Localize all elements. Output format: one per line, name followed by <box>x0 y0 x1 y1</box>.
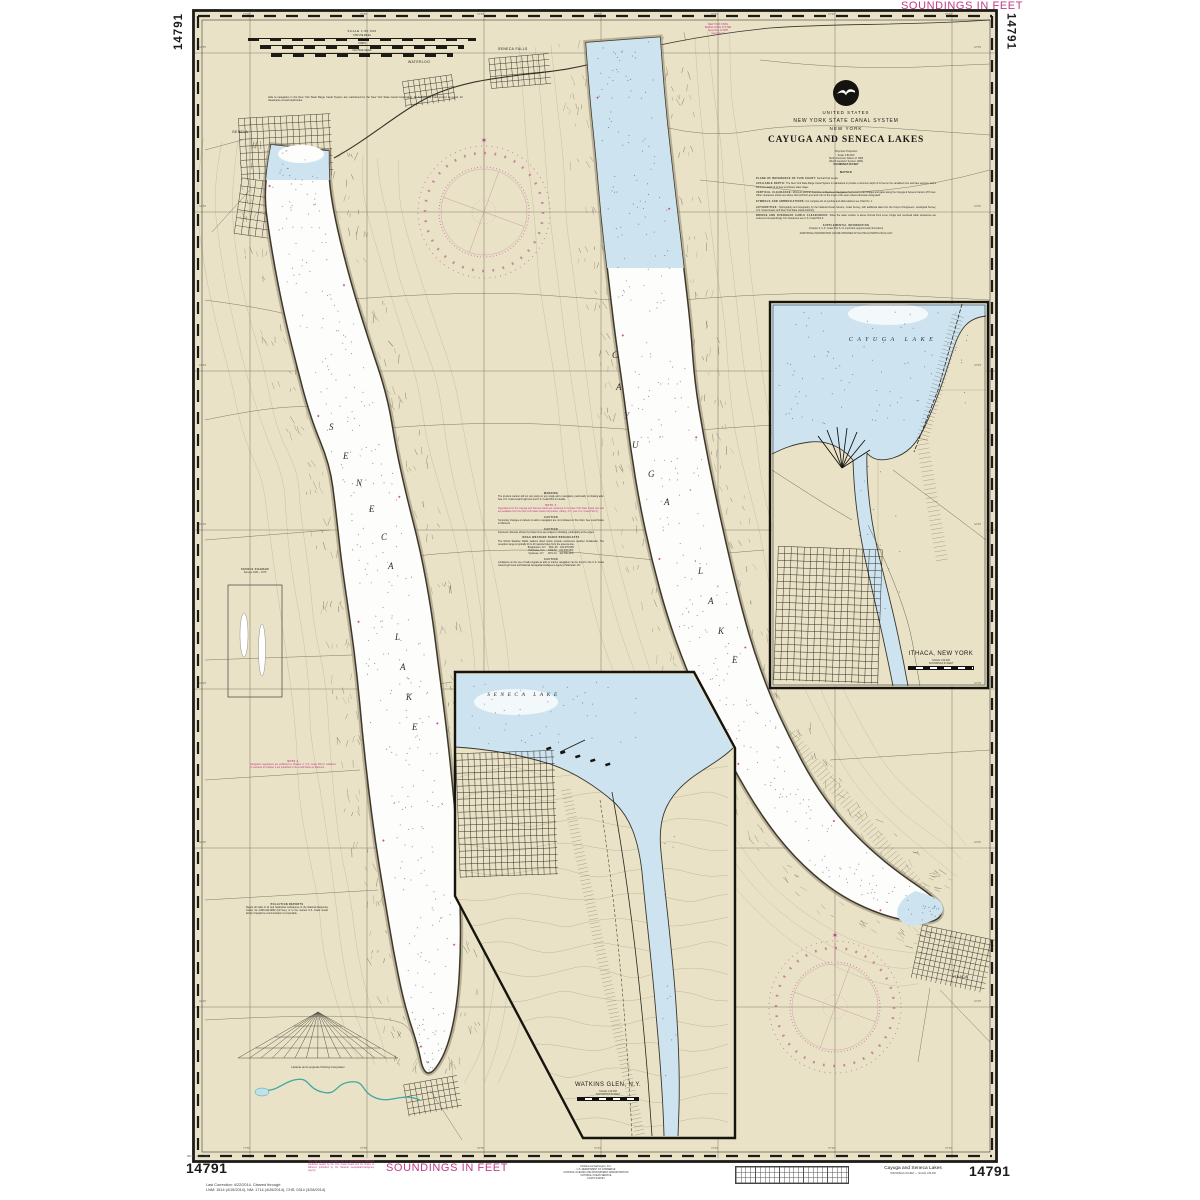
canal-aids-note: Aids to navigation in the New York State… <box>268 96 463 103</box>
canal-note-line: (see Note C) <box>693 33 743 36</box>
notes-block: WARNING The prudent mariner will not rel… <box>498 492 604 501</box>
bottom-right-subtitle: SOUNDINGS IN FEET — SCALE 1:80,000 <box>858 1172 968 1175</box>
note-paragraph: AUTHORITIES: Hydrography and topography … <box>756 206 936 212</box>
scale-bar <box>271 53 453 57</box>
title-block: UNITED STATES NEW YORK STATE CANAL SYSTE… <box>756 110 936 235</box>
graticule-label: 42°30' <box>199 841 206 844</box>
lake-letter: A <box>708 596 714 606</box>
town-label-waterloo: WATERLOO <box>408 60 430 64</box>
inset-ithaca-title-block: ITHACA, NEW YORK SCALE 1:20,000 SOUNDING… <box>896 651 986 670</box>
scale-text: SCALE 1:80,000 <box>246 30 478 34</box>
interpolator-label: Latitude and Longitude Plotting Interpol… <box>248 1066 388 1069</box>
lake-letter: K <box>406 692 412 702</box>
graticule-label: 76°50' <box>477 13 484 16</box>
lake-letter: U <box>632 440 639 450</box>
lake-letter: C <box>612 350 618 360</box>
note-a-body: Navigation regulations are published in … <box>250 763 336 769</box>
title-system: NEW YORK STATE CANAL SYSTEM <box>756 118 936 124</box>
lake-letter: Y <box>624 411 629 421</box>
note-paragraph: SYMBOLS AND ABBREVIATIONS: For complete … <box>756 200 936 203</box>
margin-number-bottom-left: 14791 <box>186 1160 227 1178</box>
publisher-line: COAST SURVEY <box>550 1178 642 1181</box>
inset-watkins-lake-label: SENECA LAKE <box>466 692 582 699</box>
graticule-label: 76°30' <box>945 13 952 16</box>
lake-letter: A <box>616 382 622 392</box>
scale-bars-block: SCALE 1:80,000 STATUTE MILES YARDS NAUTI… <box>246 30 478 57</box>
graticule-label: 42°50' <box>199 205 206 208</box>
lake-letter: E <box>343 451 349 461</box>
north-star-icon: ✶ <box>832 931 839 940</box>
bottom-right-title-block: Cayuga and Seneca Lakes SOUNDINGS IN FEE… <box>858 1166 968 1175</box>
scale-bar <box>248 38 476 42</box>
graticule-label: 76°40' <box>711 1147 718 1150</box>
graticule-label: 76°35' <box>828 13 835 16</box>
notes-block: CAUTION Limitations on the use of radio … <box>498 558 604 567</box>
notes-block: NOAA WEATHER RADIO BROADCASTS The NOAA W… <box>498 536 604 555</box>
note-paragraph: VERTICAL CLEARANCE: Minimum vertical cle… <box>756 191 936 197</box>
lake-letter: G <box>648 469 655 479</box>
graticule-label: 42°55' <box>199 46 206 49</box>
notes-header: NOTES <box>756 171 936 175</box>
graticule-label: 42°25' <box>974 1000 981 1003</box>
graticule-label: 76°55' <box>360 1147 367 1150</box>
graticule-label: 76°45' <box>594 13 601 16</box>
graticule-label: 76°40' <box>711 13 718 16</box>
lake-letter: K <box>718 626 724 636</box>
inset-ithaca-scalebar <box>908 666 974 670</box>
lake-letter: A <box>388 561 394 571</box>
margin-number-bottom-right: 14791 <box>969 1163 1010 1181</box>
note-paragraph: BRIDGE AND OVERHEAD CABLE CLEARANCES: Wh… <box>756 214 936 220</box>
lake-letter: S <box>329 422 334 432</box>
lake-letter: E <box>732 655 738 665</box>
projection-line: SOUNDINGS IN FEET <box>756 163 936 166</box>
graticule-label: 77°00' <box>243 13 250 16</box>
lake-letter: C <box>381 532 387 542</box>
edition-note: 4th Ed., Dec. '09 <box>187 1155 208 1158</box>
graticule-label: 42°25' <box>199 1000 206 1003</box>
graticule-label: 42°40' <box>199 523 206 526</box>
inset-watkins-soundings: SOUNDINGS IN FEET <box>556 1093 660 1096</box>
title-state: NEW YORK <box>756 126 936 132</box>
town-label-ithaca: ITHACA <box>953 975 968 979</box>
projection-lines: Polyconic Projection Scale 1:80,000 Nort… <box>756 150 936 166</box>
margin-number-top-right: 14791 <box>1003 13 1017 50</box>
graticule-label: 76°55' <box>360 13 367 16</box>
center-notes-column: WARNING The prudent mariner will not rel… <box>498 492 604 570</box>
inset-ithaca-title: ITHACA, NEW YORK <box>896 651 986 659</box>
publisher-block: Published at Washington, D.C. U.S. DEPAR… <box>550 1166 642 1181</box>
margin-soundings-bottom: SOUNDINGS IN FEET <box>386 1162 508 1176</box>
barge-canal-note: NEW YORK STATE BARGE CANAL SYSTEM Speed … <box>693 24 743 36</box>
scale-bar <box>260 45 464 49</box>
graticule-label: 42°35' <box>199 682 206 685</box>
graticule-label: 42°55' <box>974 46 981 49</box>
margin-number-top-left: 14791 <box>172 13 186 50</box>
correction-note: Last Correction: 4/22/2014. Cleared thro… <box>206 1183 325 1192</box>
inset-ithaca <box>770 302 988 688</box>
lake-letter: A <box>664 497 670 507</box>
chart-canvas: ✶✶ <box>0 0 1200 1200</box>
lake-letter: L <box>395 632 400 642</box>
inset-watkins-title-block: WATKINS GLEN, N.Y. SCALE 1:20,000 SOUNDI… <box>556 1082 660 1101</box>
graticule-label: 42°45' <box>974 364 981 367</box>
chart-sheet: ✶✶ 14791 SOUNDINGS IN FEET 14791 4th Ed.… <box>0 0 1200 1200</box>
noaa-seagull-icon <box>833 80 859 106</box>
notes-block: CAUTION Temporary changes or defects in … <box>498 516 604 525</box>
supplemental-line: ADDITIONAL INFORMATION CAN BE OBTAINED A… <box>756 232 936 235</box>
inset-watkins-scalebar <box>577 1097 639 1101</box>
chart-notes: PLANE OF REFERENCE OF THIS CHART: Normal… <box>756 177 936 221</box>
graticule-label: 42°30' <box>974 841 981 844</box>
graticule-label: 76°50' <box>477 1147 484 1150</box>
notes-block: CAUTION Improved channels shown by broke… <box>498 528 604 534</box>
margin-logo-grid <box>735 1166 849 1184</box>
north-star-icon: ✶ <box>481 136 488 145</box>
town-label-seneca-falls: SENECA FALLS <box>498 47 528 51</box>
note-paragraph: AVAILABLE DEPTH: The New York State Barg… <box>756 182 936 188</box>
lake-letter: N <box>356 478 362 488</box>
pollution-block: POLLUTION REPORTS Report all spills of o… <box>246 903 328 916</box>
inset-watkins-title: WATKINS GLEN, N.Y. <box>556 1082 660 1090</box>
lake-letter: A <box>400 662 406 672</box>
margin-soundings-top-right: SOUNDINGS IN FEET <box>901 0 1023 14</box>
graticule-label: 76°35' <box>828 1147 835 1150</box>
inset-ithaca-soundings: SOUNDINGS IN FEET <box>896 662 986 665</box>
graticule-label: 42°50' <box>974 205 981 208</box>
graticule-label: 42°45' <box>199 364 206 367</box>
graticule-label: 77°00' <box>243 1147 250 1150</box>
graticule-label: 42°35' <box>974 682 981 685</box>
title-country: UNITED STATES <box>756 110 936 116</box>
town-label-geneva: GENEVA <box>232 130 248 134</box>
graticule-label: 76°30' <box>945 1147 952 1150</box>
chart-title: CAYUGA AND SENECA LAKES <box>756 135 936 147</box>
bottom-magenta-note: This chart has been corrected from the L… <box>308 1161 374 1173</box>
correction-line-2: LNM: 1514 (4/15/2014), NM: 1714 (4/26/20… <box>206 1188 325 1193</box>
source-diagram-caption: SOURCE DIAGRAM Surveys 1934 – 1975 <box>222 568 288 574</box>
noaa-logo <box>833 80 859 106</box>
note-paragraph: PLANE OF REFERENCE OF THIS CHART: Normal… <box>756 177 936 180</box>
lake-letter: E <box>412 722 418 732</box>
notes-block-magenta: NOTE C Regulations for the Cayuga and Se… <box>498 504 604 513</box>
graticule-label: 42°40' <box>974 523 981 526</box>
supplemental-line: (Chapter 9, U.S. Coast Pilot 6, for impo… <box>756 227 936 230</box>
note-a-block: NOTE A Navigation regulations are publis… <box>250 760 336 769</box>
supplemental-block: SUPPLEMENTAL INFORMATION (Chapter 9, U.S… <box>756 224 936 235</box>
inset-ithaca-lake-label: CAYUGA LAKE <box>830 337 956 345</box>
pollution-body: Report all spills of oil and hazardous s… <box>246 906 328 915</box>
lake-letter: E <box>369 504 375 514</box>
graticule-label: 76°45' <box>594 1147 601 1150</box>
lake-letter: L <box>698 566 703 576</box>
